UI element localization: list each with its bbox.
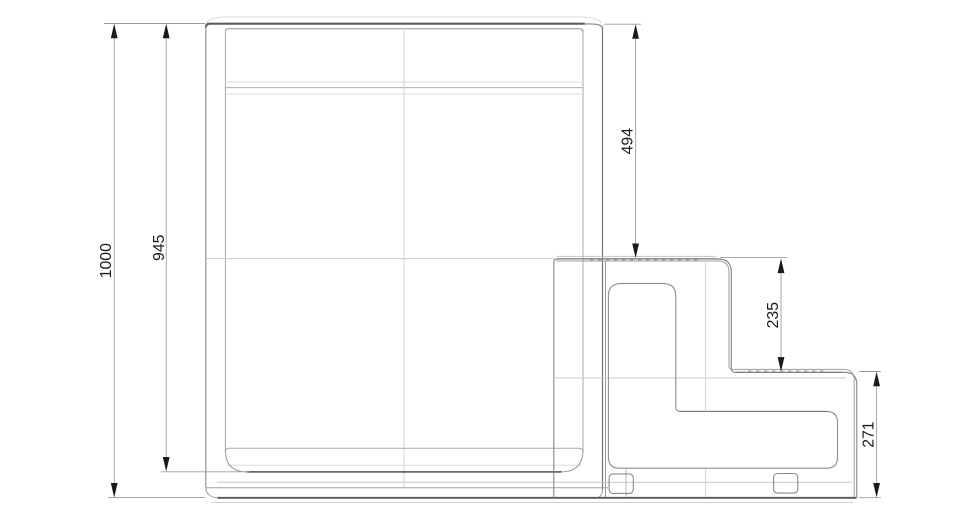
svg-text:235: 235 xyxy=(765,302,782,329)
svg-text:494: 494 xyxy=(619,128,636,155)
svg-text:1000: 1000 xyxy=(98,243,115,278)
svg-text:945: 945 xyxy=(151,234,168,261)
svg-text:271: 271 xyxy=(860,421,877,448)
